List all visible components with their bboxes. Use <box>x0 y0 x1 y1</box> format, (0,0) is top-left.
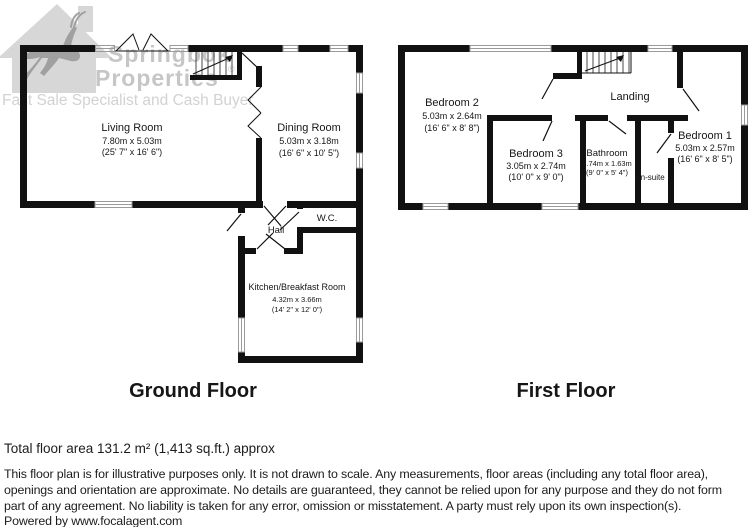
total-floor-area: Total floor area 131.2 m² (1,413 sq.ft.)… <box>4 441 748 456</box>
floorplan-page: Living Room 7.80m x 5.03m (25' 7" x 16' … <box>0 0 750 527</box>
footer: Total floor area 131.2 m² (1,413 sq.ft.)… <box>4 441 748 527</box>
disclaimer-line-1: This floor plan is for illustrative purp… <box>4 467 748 483</box>
disclaimer-line-3: part of any agreement. No liability is t… <box>4 499 748 515</box>
watermark-brand-bottom: Properties <box>95 65 219 91</box>
powered-by: Powered by www.focalagent.com <box>4 514 748 527</box>
watermark-registered-mark: ® <box>228 64 235 74</box>
watermark-brand-top: Springbok <box>108 41 231 67</box>
disclaimer-line-2: openings and orientation are approximate… <box>4 483 748 499</box>
watermark-tagline: Fast Sale Specialist and Cash Buyer <box>2 92 254 109</box>
